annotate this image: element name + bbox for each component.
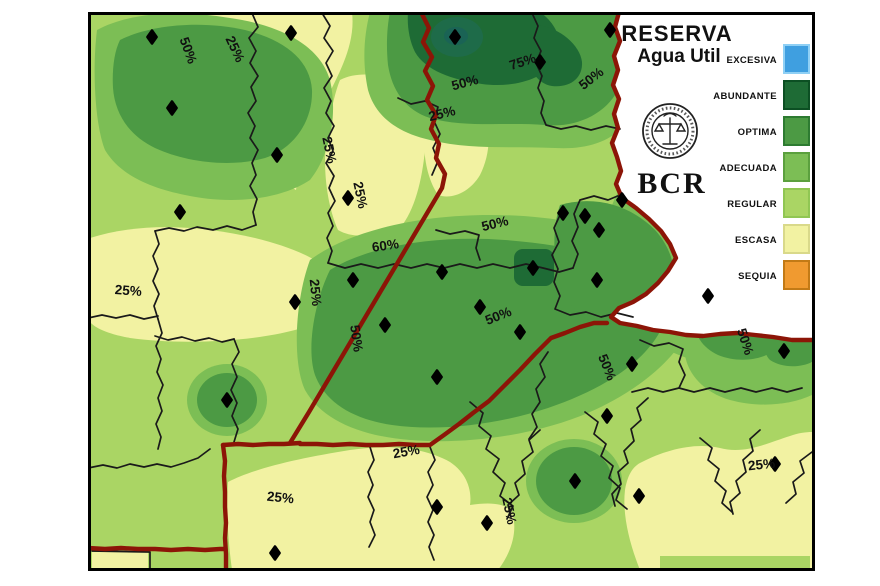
legend-label: ADECUADA [719,163,777,174]
legend-label: ABUNDANTE [713,91,777,102]
border-horizontal-west [223,443,300,445]
legend-swatch [784,45,809,73]
contour-label: 25% [266,489,294,507]
legend-swatch [784,117,809,145]
legend-swatch [784,189,809,217]
map-content: 50%25%75%50%50%25%25%25%60%50%25%25%50%5… [88,12,815,571]
border-southwest [88,548,225,550]
legend-title-line2: Agua Util [637,46,720,67]
map-svg: 50%25%75%50%50%25%25%25%60%50%25%25%50%5… [0,0,880,586]
bcr-seal-logo [643,104,697,158]
legend-swatch [784,153,809,181]
legend-label: EXCESIVA [726,55,777,66]
legend-swatch [784,81,809,109]
legend-swatch [784,261,809,289]
legend-swatch [784,225,809,253]
bcr-org-label: BCR [637,167,706,200]
legend-label: REGULAR [727,199,777,210]
contour-label: 25% [747,456,775,474]
contour-label: 25% [307,278,325,306]
escasa-bottom-left-box [92,552,148,569]
legend-label: ESCASA [735,235,777,246]
legend-title-line1: RESERVA [621,21,732,46]
reserva-agua-util-map-figure: 50%25%75%50%50%25%25%25%60%50%25%25%50%5… [0,0,880,586]
legend-label: SEQUIA [738,271,777,282]
legend-label: OPTIMA [738,127,777,138]
contour-label: 25% [114,282,142,299]
